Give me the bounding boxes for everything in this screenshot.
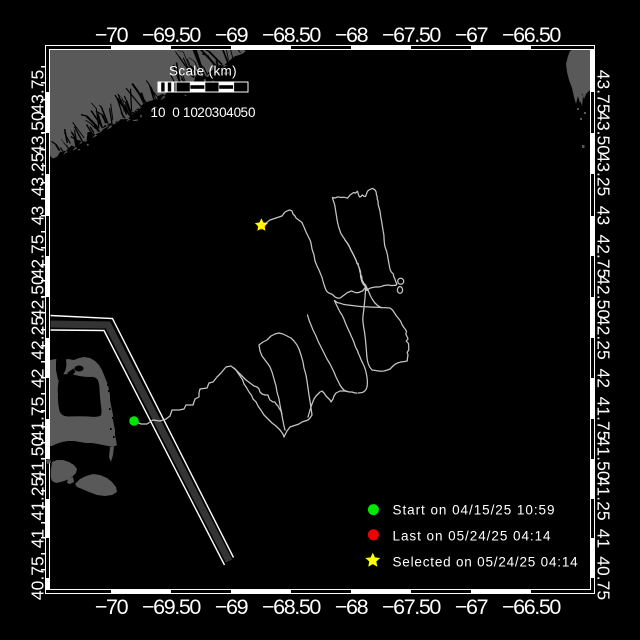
svg-text:40.75: 40.75 — [28, 556, 48, 600]
svg-text:−70: −70 — [95, 23, 129, 47]
svg-text:43.25: 43.25 — [593, 152, 613, 196]
svg-text:42.50: 42.50 — [594, 275, 614, 319]
svg-text:41: 41 — [593, 529, 613, 548]
svg-text:−69: −69 — [215, 595, 248, 619]
svg-text:0: 0 — [172, 105, 180, 120]
svg-text:40.75: 40.75 — [593, 556, 613, 600]
svg-text:−69: −69 — [215, 23, 248, 47]
svg-text:41.50: 41.50 — [28, 437, 48, 481]
svg-text:40: 40 — [226, 105, 241, 120]
svg-text:−66.50: −66.50 — [502, 23, 561, 47]
svg-text:42.25: 42.25 — [594, 316, 614, 360]
svg-text:42.50: 42.50 — [27, 275, 47, 319]
svg-text:Start on 04/15/25 10:59: Start on 04/15/25 10:59 — [393, 503, 556, 518]
svg-text:−68: −68 — [335, 23, 369, 47]
svg-text:41.75: 41.75 — [28, 397, 48, 441]
svg-text:Scale (km): Scale (km) — [169, 64, 237, 79]
svg-text:43: 43 — [594, 206, 614, 225]
svg-text:−67.50: −67.50 — [382, 23, 441, 47]
svg-text:−68.50: −68.50 — [262, 23, 321, 47]
svg-text:−67: −67 — [455, 23, 488, 47]
svg-text:−69.50: −69.50 — [142, 595, 201, 619]
svg-text:42.75: 42.75 — [27, 235, 47, 279]
svg-text:41.25: 41.25 — [593, 477, 613, 521]
svg-text:−67.50: −67.50 — [382, 595, 441, 619]
svg-text:Selected on 05/24/25 04:14: Selected on 05/24/25 04:14 — [393, 555, 579, 570]
svg-text:30: 30 — [212, 105, 227, 120]
svg-text:−70: −70 — [95, 595, 129, 619]
svg-text:Last on 05/24/25 04:14: Last on 05/24/25 04:14 — [393, 529, 552, 544]
svg-text:−69.50: −69.50 — [142, 23, 201, 47]
svg-text:43.75: 43.75 — [593, 70, 613, 114]
svg-text:41: 41 — [28, 529, 48, 548]
svg-text:41.75: 41.75 — [593, 397, 613, 441]
svg-text:20: 20 — [197, 105, 212, 120]
svg-text:43.50: 43.50 — [594, 111, 614, 155]
svg-text:−68: −68 — [335, 595, 369, 619]
svg-text:43.25: 43.25 — [28, 152, 48, 196]
svg-text:42: 42 — [593, 369, 613, 388]
svg-text:−67: −67 — [455, 595, 488, 619]
svg-text:10: 10 — [183, 105, 198, 120]
svg-text:41.25: 41.25 — [28, 477, 48, 521]
svg-text:43.50: 43.50 — [27, 111, 47, 155]
svg-text:10: 10 — [150, 105, 165, 120]
svg-text:−68.50: −68.50 — [262, 595, 321, 619]
svg-text:42.75: 42.75 — [594, 235, 614, 279]
svg-text:42.25: 42.25 — [27, 316, 47, 360]
svg-text:42: 42 — [28, 369, 48, 388]
svg-text:−66.50: −66.50 — [502, 595, 561, 619]
svg-text:50: 50 — [240, 105, 255, 120]
svg-text:43.75: 43.75 — [28, 70, 48, 114]
svg-text:43: 43 — [28, 206, 48, 225]
svg-text:41.50: 41.50 — [593, 437, 613, 481]
